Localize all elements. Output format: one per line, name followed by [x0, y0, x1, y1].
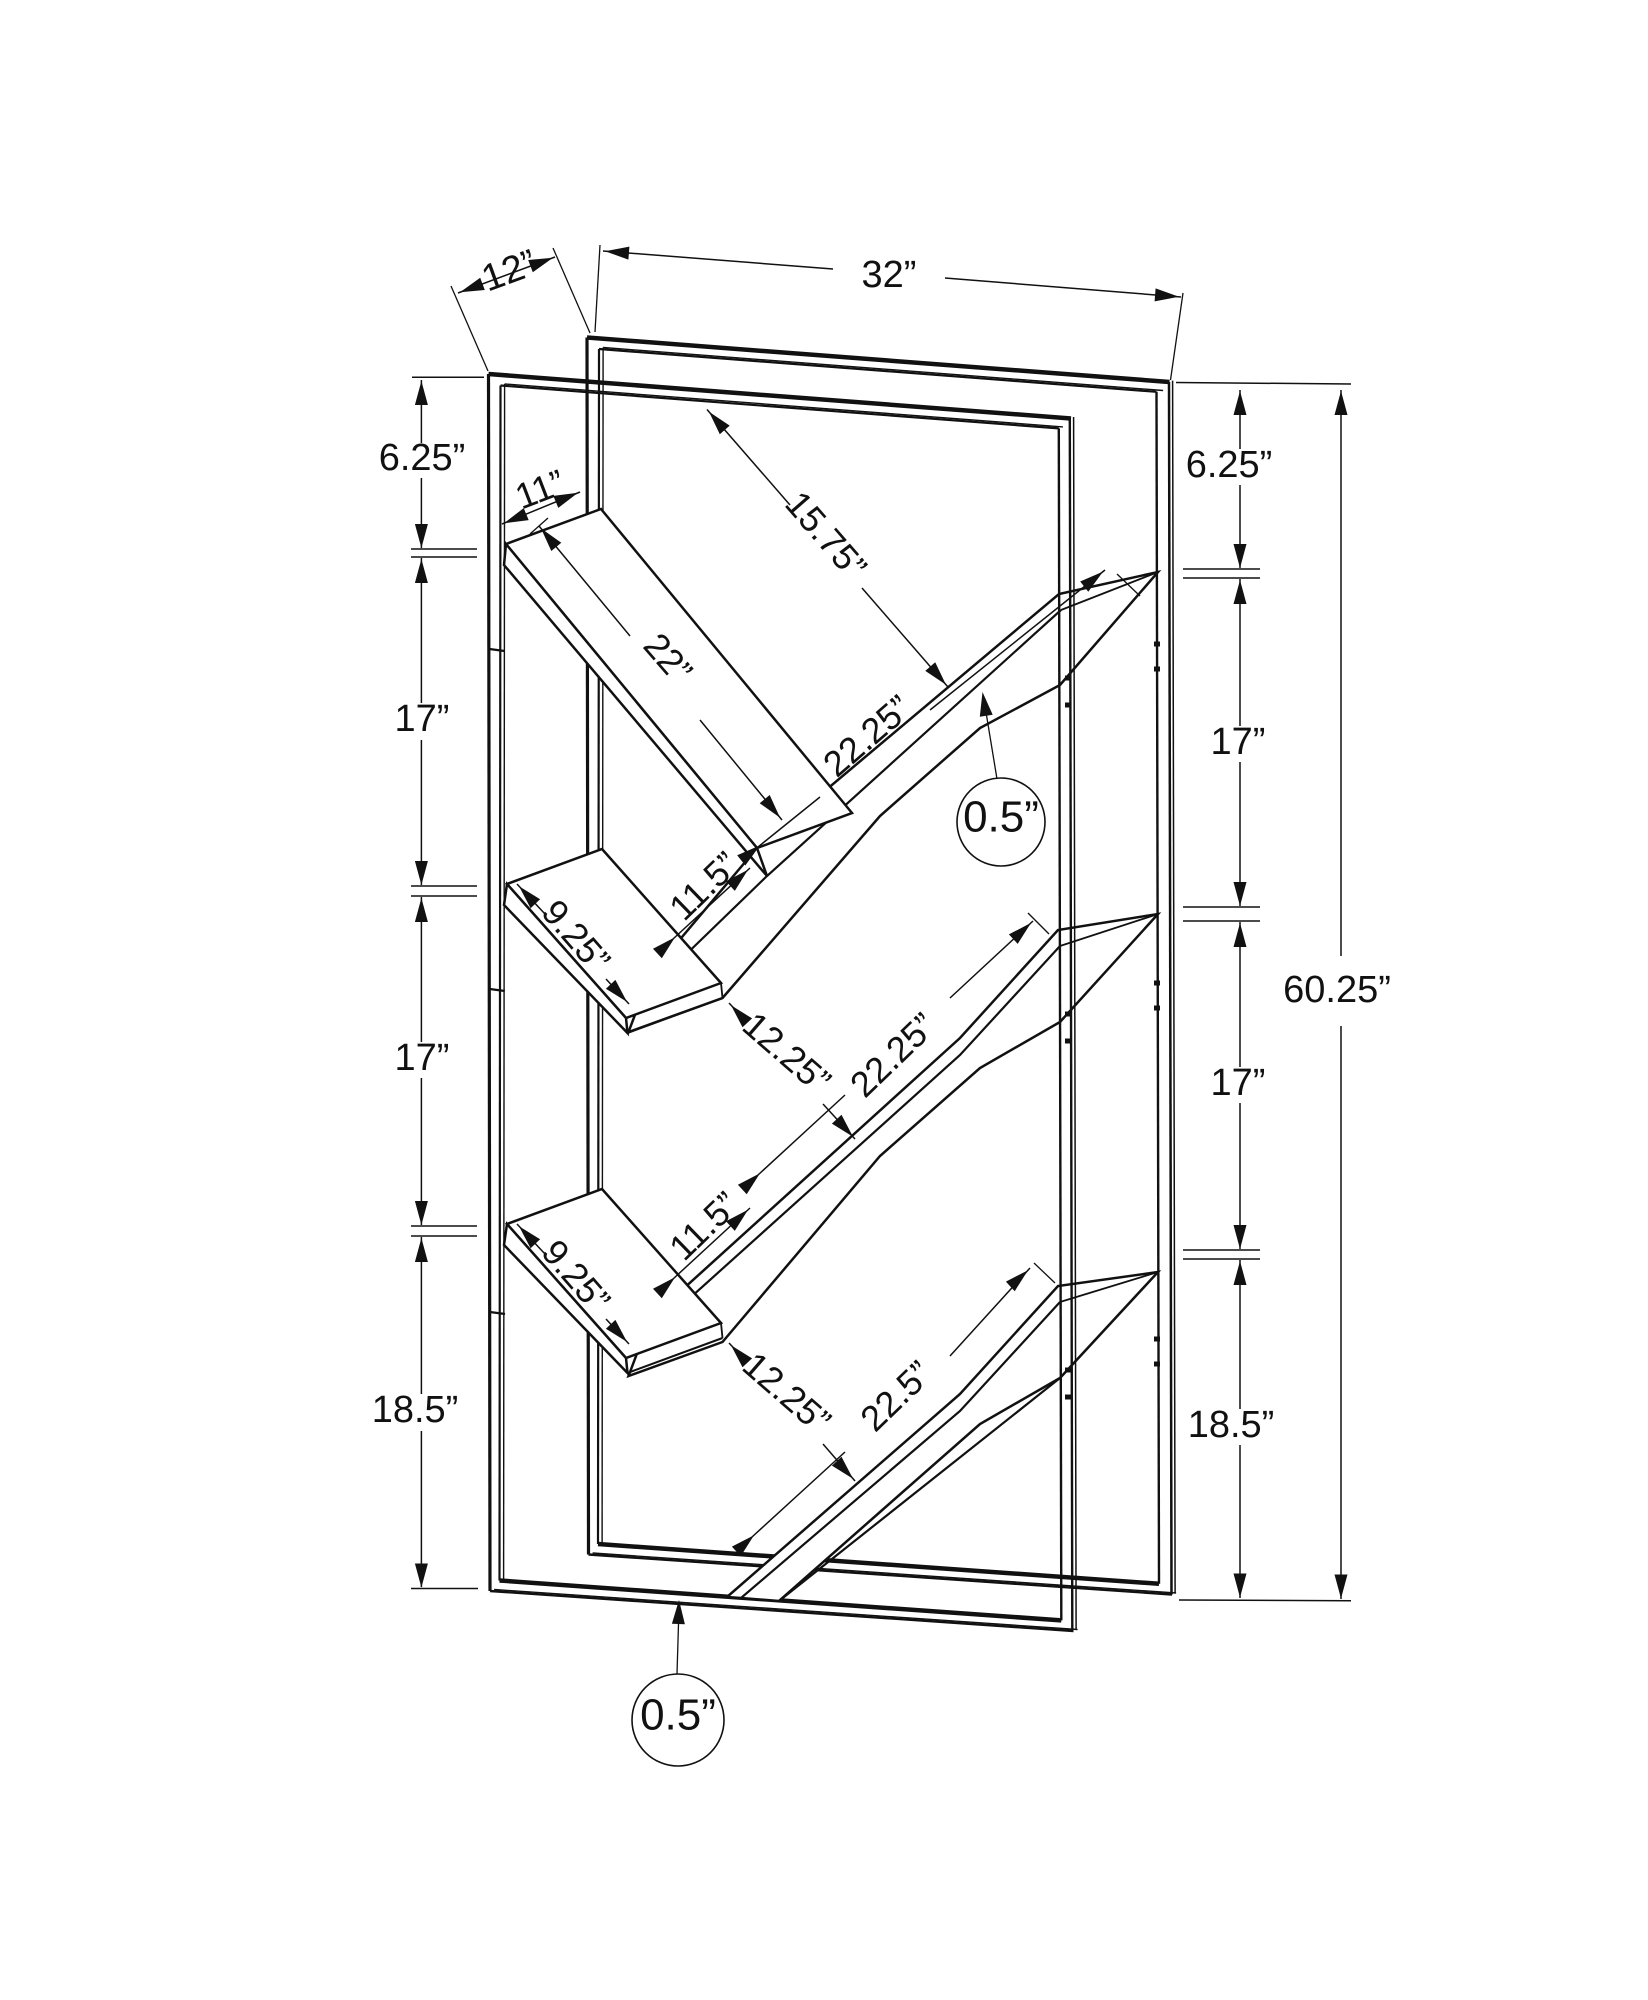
svg-text:18.5”: 18.5” — [372, 1389, 459, 1431]
svg-text:32”: 32” — [862, 254, 917, 296]
svg-text:17”: 17” — [395, 698, 450, 740]
svg-text:0.5”: 0.5” — [963, 793, 1039, 842]
svg-text:17”: 17” — [395, 1037, 450, 1079]
svg-text:6.25”: 6.25” — [1186, 444, 1273, 486]
svg-text:18.5”: 18.5” — [1188, 1404, 1275, 1446]
svg-text:17”: 17” — [1211, 1062, 1266, 1104]
svg-text:6.25”: 6.25” — [379, 437, 466, 479]
svg-text:17”: 17” — [1211, 721, 1266, 763]
svg-text:60.25”: 60.25” — [1283, 969, 1391, 1011]
svg-text:0.5”: 0.5” — [640, 1691, 716, 1740]
